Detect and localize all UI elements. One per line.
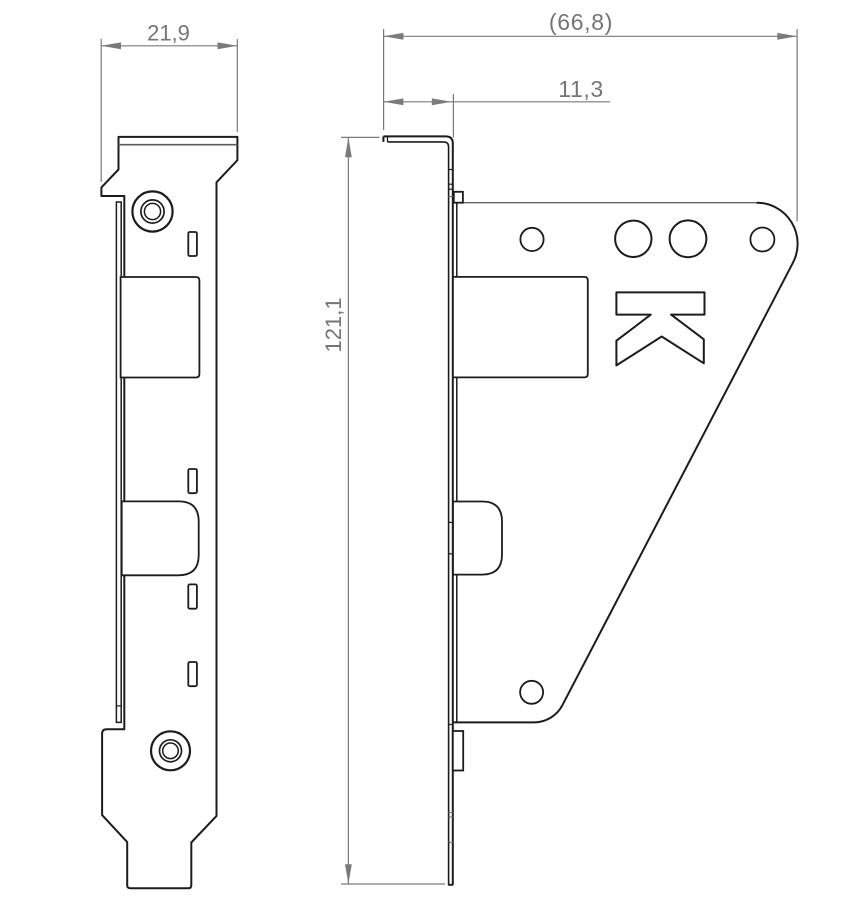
svg-text:21,9: 21,9: [147, 21, 190, 46]
svg-text:121,1: 121,1: [321, 297, 346, 352]
svg-text:11,3: 11,3: [558, 76, 603, 102]
svg-text:(66,8): (66,8): [549, 9, 613, 35]
